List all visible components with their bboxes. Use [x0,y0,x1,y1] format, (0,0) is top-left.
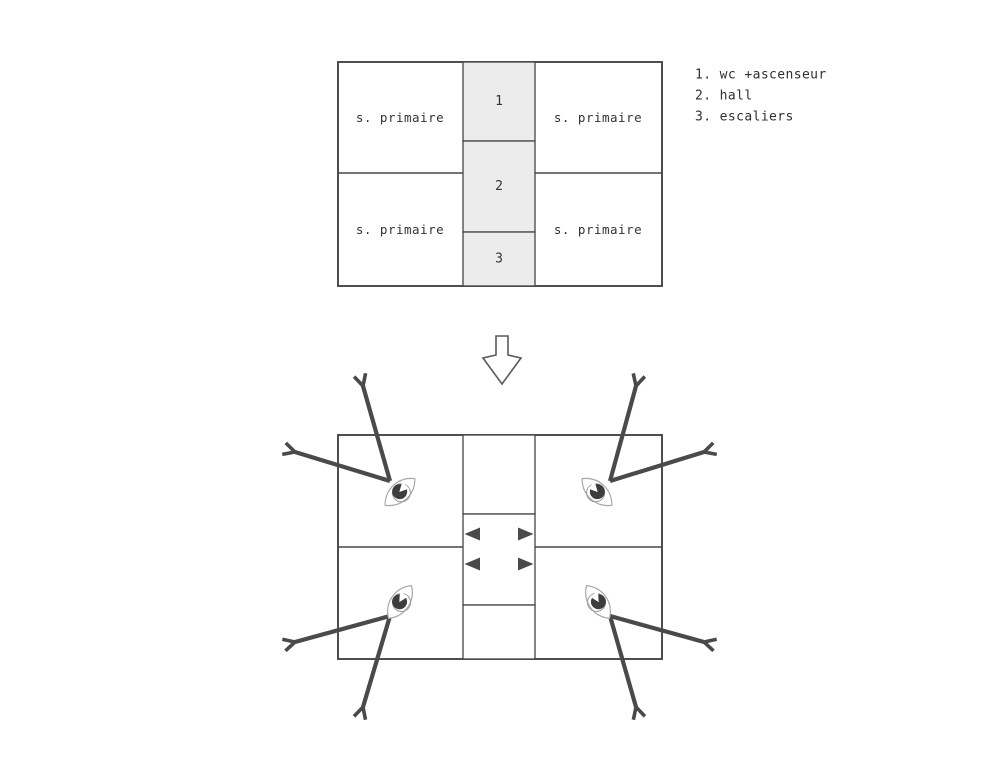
upper-floor-plan: s. primaire s. primaire s. primaire s. p… [338,62,662,286]
floor-plan-diagram: s. primaire s. primaire s. primaire s. p… [0,0,1000,757]
lower-cell-top [463,435,535,514]
room-label-top-left: s. primaire [356,110,444,125]
legend-item-escaliers: 3. escaliers [695,110,794,125]
room-label-top-right: s. primaire [554,110,642,125]
lower-cell-middle [463,514,535,605]
legend-item-wc-ascenseur: 1. wc +ascenseur [695,68,827,83]
lower-cell-bottom [463,605,535,659]
cell-number-1: 1 [495,94,503,109]
down-block-arrow-icon [483,336,521,384]
room-label-bottom-left: s. primaire [356,222,444,237]
cell-number-2: 2 [495,179,503,194]
diagram-canvas: s. primaire s. primaire s. primaire s. p… [0,0,1000,757]
cell-number-3: 3 [495,252,503,267]
room-label-bottom-right: s. primaire [554,222,642,237]
legend: 1. wc +ascenseur 2. hall 3. escaliers [695,68,827,125]
legend-item-hall: 2. hall [695,89,753,104]
